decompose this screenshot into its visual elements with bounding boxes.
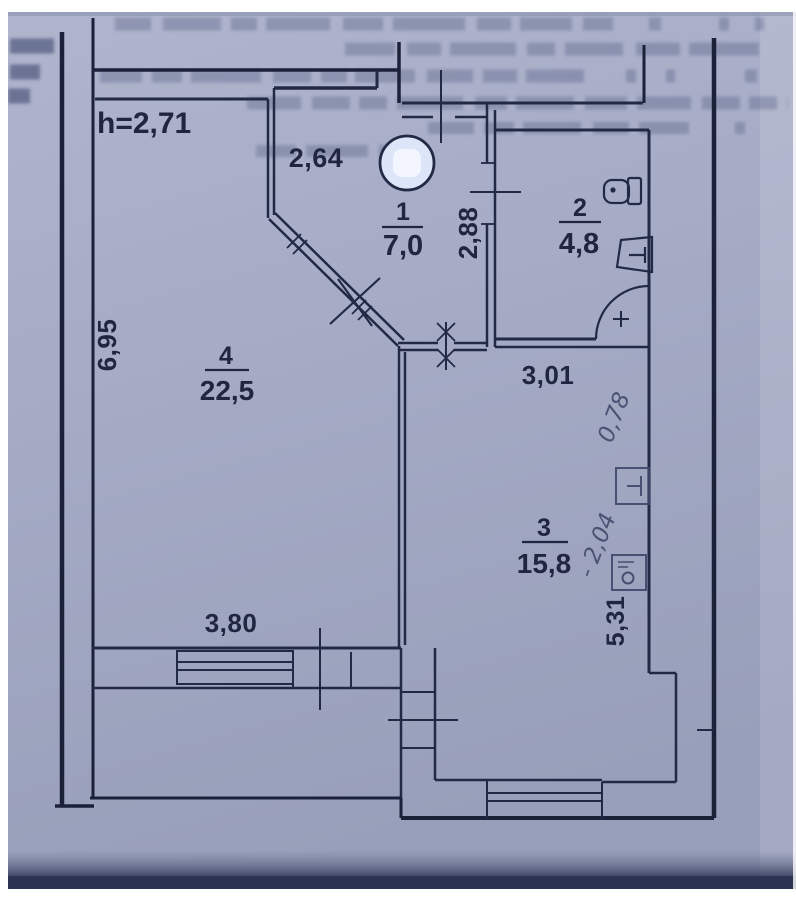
paper-edge-light	[760, 12, 796, 890]
round-fixture-icon	[380, 136, 434, 190]
scan-top-margin	[0, 0, 796, 12]
room-1-number: 1	[396, 198, 410, 226]
scanned-floor-plan-page: h=2,71 2,64 1 7,0 2 4,8 2,88 3,01 3 15,8…	[0, 0, 796, 900]
scan-left-margin	[0, 0, 8, 900]
dim-room4-side: 6,95	[92, 319, 122, 372]
room-3-number: 3	[537, 514, 551, 542]
dim-room3-side: 5,31	[602, 596, 630, 647]
dim-hall-width: 3,01	[522, 360, 575, 390]
room-4-area: 22,5	[200, 375, 255, 406]
dim-entry-side: 2,88	[453, 207, 483, 260]
scan-dark-band	[8, 876, 796, 889]
floor-plan-drawing: h=2,71 2,64 1 7,0 2 4,8 2,88 3,01 3 15,8…	[0, 0, 796, 900]
room-1-area: 7,0	[383, 230, 423, 262]
paper-bottom-shade	[8, 850, 796, 878]
room-3-area: 15,8	[517, 548, 572, 579]
room-2-number: 2	[573, 194, 587, 222]
paper-top-shadow	[8, 12, 796, 16]
scan-bottom-margin	[0, 889, 796, 900]
dim-room4-width: 3,80	[205, 608, 258, 638]
room-2-area: 4,8	[559, 228, 599, 260]
room-4-number: 4	[219, 342, 233, 370]
dim-top-niche-width: 2,64	[289, 143, 344, 173]
ceiling-height-label: h=2,71	[97, 107, 191, 140]
